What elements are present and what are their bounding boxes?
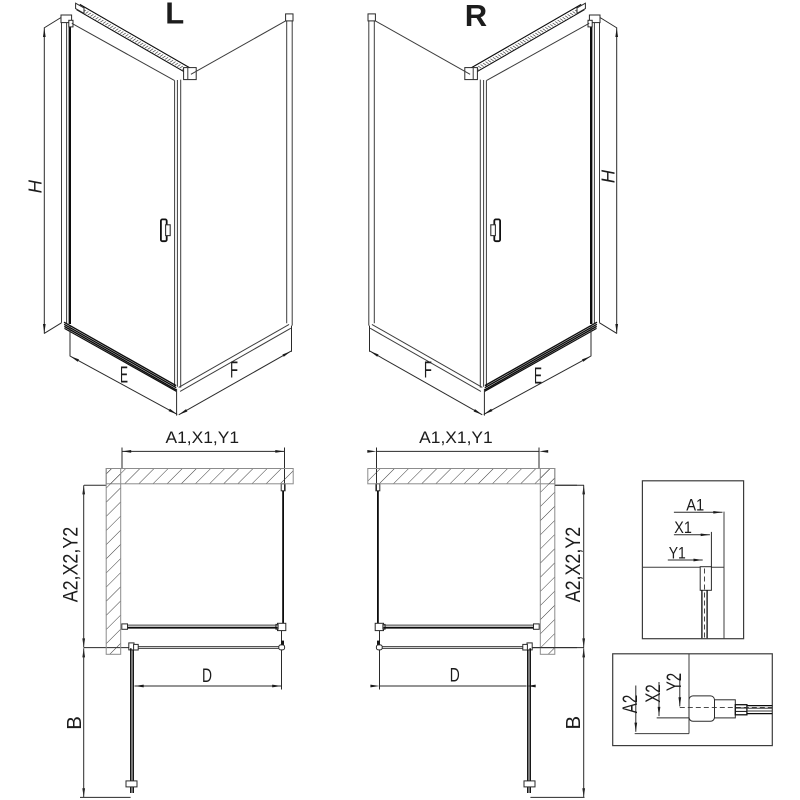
svg-text:A1: A1	[686, 496, 704, 515]
svg-text:A2: A2	[619, 695, 642, 714]
svg-text:L: L	[165, 0, 184, 31]
svg-text:Y2: Y2	[663, 673, 686, 692]
svg-text:D: D	[202, 665, 212, 687]
svg-text:B: B	[63, 716, 86, 730]
svg-text:E: E	[534, 363, 542, 389]
svg-text:R: R	[465, 0, 487, 33]
svg-text:D: D	[450, 665, 460, 687]
svg-text:A1,X1,Y1: A1,X1,Y1	[166, 429, 240, 447]
svg-text:F: F	[230, 357, 238, 383]
svg-text:A2,X2,Y2: A2,X2,Y2	[59, 527, 82, 603]
svg-text:A2,X2,Y2: A2,X2,Y2	[562, 527, 585, 603]
svg-text:H: H	[25, 179, 46, 193]
svg-text:A1,X1,Y1: A1,X1,Y1	[419, 429, 493, 447]
svg-text:X1: X1	[674, 518, 692, 537]
svg-text:E: E	[120, 361, 128, 387]
svg-text:H: H	[598, 169, 619, 183]
svg-text:B: B	[562, 716, 585, 730]
svg-text:Y1: Y1	[669, 543, 686, 562]
svg-text:X2: X2	[642, 684, 665, 703]
svg-text:F: F	[424, 357, 432, 383]
